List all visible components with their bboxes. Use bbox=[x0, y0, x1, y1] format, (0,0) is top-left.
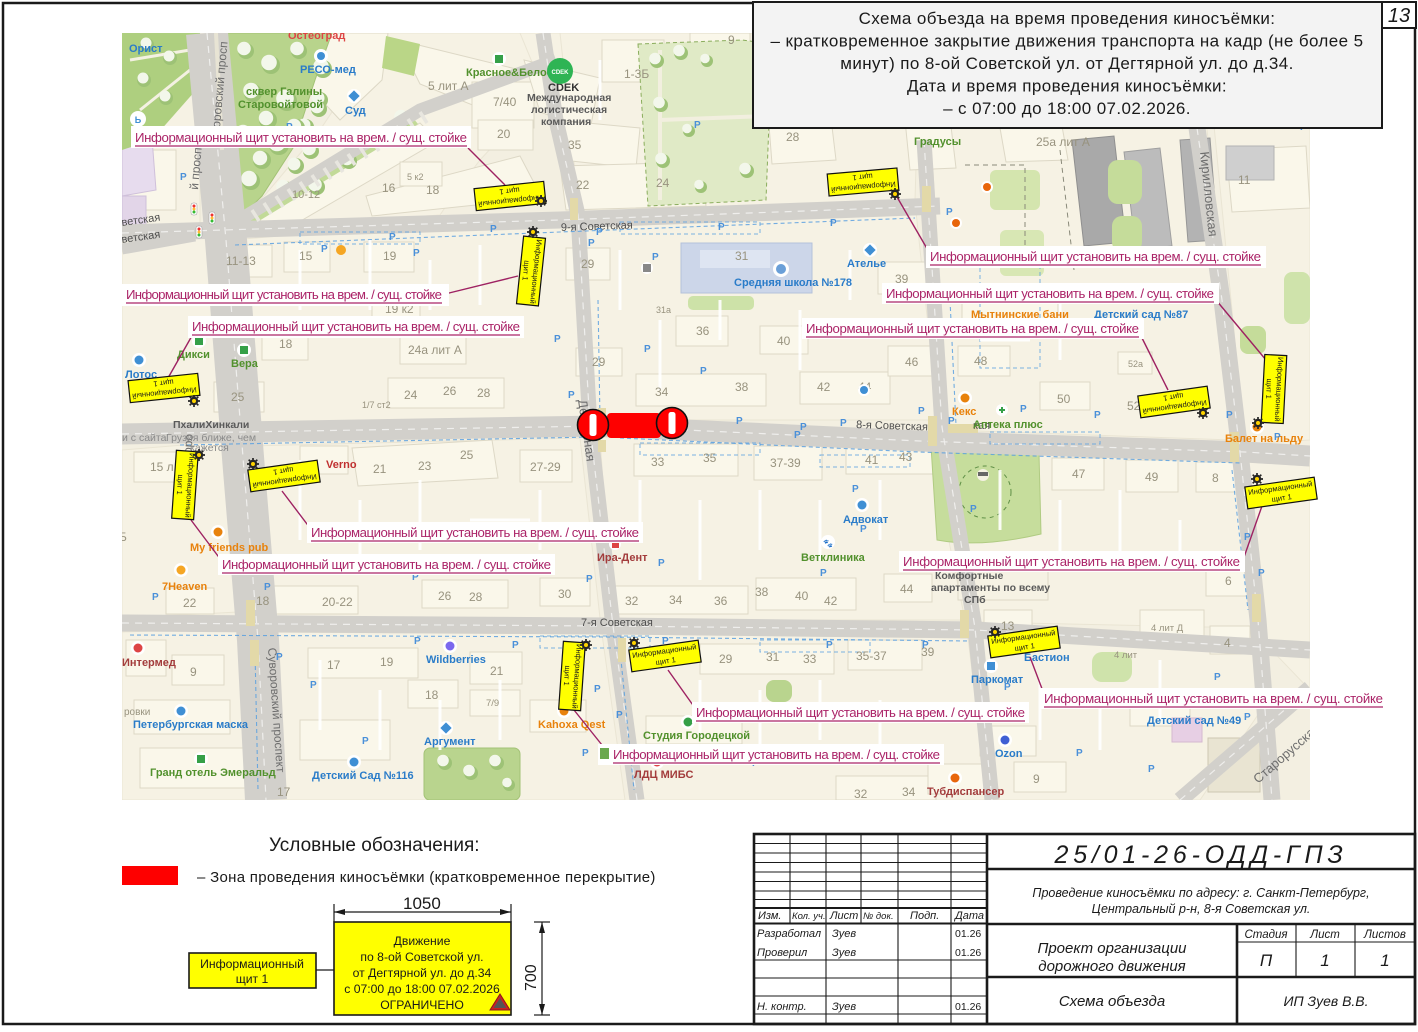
svg-text:– кратковременное закрытие дви: – кратковременное закрытие движения тран… bbox=[771, 32, 1364, 51]
svg-text:33: 33 bbox=[803, 652, 817, 666]
svg-text:P: P bbox=[946, 207, 953, 218]
svg-text:26: 26 bbox=[443, 384, 457, 398]
svg-text:28: 28 bbox=[477, 386, 491, 400]
svg-text:Вера: Вера bbox=[231, 358, 259, 370]
svg-text:Движение: Движение bbox=[394, 934, 451, 948]
svg-text:щит 1: щит 1 bbox=[175, 474, 185, 495]
svg-text:P: P bbox=[840, 418, 847, 429]
svg-text:P: P bbox=[1020, 404, 1027, 415]
svg-text:34: 34 bbox=[669, 593, 683, 607]
svg-text:Информационный щит установить: Информационный щит установить на врем. /… bbox=[886, 286, 1214, 301]
svg-text:700: 700 bbox=[523, 964, 540, 991]
svg-text:27-29: 27-29 bbox=[530, 460, 561, 474]
svg-text:Старовойтовой: Старовойтовой bbox=[238, 99, 323, 111]
svg-text:P: P bbox=[554, 334, 561, 345]
svg-text:9: 9 bbox=[190, 665, 197, 679]
svg-text:щит 1: щит 1 bbox=[236, 972, 269, 986]
svg-text:апартаменты по всему: апартаменты по всему bbox=[931, 582, 1050, 594]
svg-text:13: 13 bbox=[1001, 619, 1015, 633]
svg-text:1050: 1050 bbox=[403, 894, 441, 913]
svg-text:P: P bbox=[736, 416, 743, 427]
svg-text:– Зона проведения киносъёмки (: – Зона проведения киносъёмки (кратковрем… bbox=[197, 869, 656, 886]
svg-text:Kahoxa Qest: Kahoxa Qest bbox=[538, 719, 606, 731]
svg-text:– с 07:00 до 18:00 07.02.2026.: – с 07:00 до 18:00 07.02.2026. bbox=[943, 99, 1191, 118]
svg-text:Verno: Verno bbox=[326, 459, 357, 471]
svg-text:1/7 ст2: 1/7 ст2 bbox=[362, 400, 391, 410]
svg-text:Информационный щит установить: Информационный щит установить на врем. /… bbox=[613, 747, 940, 762]
svg-text:P: P bbox=[582, 748, 589, 759]
svg-text:СПб: СПб bbox=[964, 594, 986, 606]
svg-text:Центральный р-н, 8-я Советская: Центральный р-н, 8-я Советская ул. bbox=[1092, 902, 1311, 916]
svg-text:Зуев: Зуев bbox=[832, 947, 856, 959]
svg-text:29: 29 bbox=[592, 355, 606, 369]
svg-text:Информационный щит установить: Информационный щит установить на врем. /… bbox=[1044, 691, 1383, 706]
svg-text:Тубдиспансер: Тубдиспансер bbox=[927, 786, 1004, 798]
svg-text:34: 34 bbox=[655, 385, 669, 399]
svg-text:логистическая: логистическая bbox=[531, 104, 607, 116]
svg-text:дорожного движения: дорожного движения bbox=[1038, 958, 1185, 975]
svg-text:13: 13 bbox=[1388, 5, 1410, 27]
svg-text:P: P bbox=[658, 558, 665, 569]
svg-text:Детский Сад №116: Детский Сад №116 bbox=[312, 770, 414, 782]
svg-text:щит 1: щит 1 bbox=[852, 172, 873, 183]
svg-text:Петербургская маска: Петербургская маска bbox=[133, 719, 249, 731]
svg-text:P: P bbox=[586, 574, 593, 585]
svg-text:Зуев: Зуев bbox=[832, 928, 856, 940]
svg-text:35: 35 bbox=[703, 451, 717, 465]
svg-text:P: P bbox=[362, 736, 369, 747]
svg-text:28: 28 bbox=[469, 590, 483, 604]
svg-text:Градусы: Градусы bbox=[914, 136, 961, 148]
svg-text:Лист: Лист bbox=[1309, 929, 1340, 941]
svg-text:с 07:00 до 18:00 07.02.2026: с 07:00 до 18:00 07.02.2026 bbox=[344, 982, 500, 996]
svg-text:P: P bbox=[830, 218, 837, 229]
svg-text:P: P bbox=[718, 222, 725, 233]
svg-text:Информационный: Информационный bbox=[200, 957, 304, 971]
svg-text:22: 22 bbox=[183, 596, 197, 610]
svg-text:P: P bbox=[596, 227, 603, 238]
svg-text:29: 29 bbox=[581, 257, 595, 271]
svg-text:52а: 52а bbox=[1128, 359, 1143, 369]
svg-text:18: 18 bbox=[425, 688, 439, 702]
svg-text:P: P bbox=[616, 710, 623, 721]
svg-text:20-22: 20-22 bbox=[322, 595, 353, 609]
svg-text:34: 34 bbox=[902, 785, 916, 799]
svg-text:18: 18 bbox=[256, 594, 270, 608]
svg-text:41: 41 bbox=[865, 453, 879, 467]
svg-text:Ира-Дент: Ира-Дент bbox=[597, 552, 648, 564]
svg-text:25: 25 bbox=[231, 390, 245, 404]
svg-text:01.26: 01.26 bbox=[955, 928, 981, 940]
svg-text:9: 9 bbox=[1033, 772, 1040, 786]
svg-text:24: 24 bbox=[656, 176, 670, 190]
svg-text:ОГРАНИЧЕНО: ОГРАНИЧЕНО bbox=[380, 998, 464, 1012]
svg-text:My friends pub: My friends pub bbox=[190, 542, 269, 554]
svg-text:P: P bbox=[644, 344, 651, 355]
svg-text:4 лит Д: 4 лит Д bbox=[1151, 623, 1184, 634]
svg-text:Изм.: Изм. bbox=[758, 910, 781, 922]
svg-text:37-39: 37-39 bbox=[770, 456, 801, 470]
svg-text:19: 19 bbox=[383, 249, 397, 263]
svg-text:11-13: 11-13 bbox=[226, 254, 256, 268]
svg-text:48: 48 bbox=[974, 354, 988, 368]
svg-text:Схема объезда: Схема объезда bbox=[1059, 993, 1165, 1010]
svg-text:P: P bbox=[1094, 410, 1101, 421]
svg-text:Условные обозначения:: Условные обозначения: bbox=[269, 835, 480, 856]
svg-text:Н. контр.: Н. контр. bbox=[757, 1001, 807, 1013]
svg-text:Информационный щит установить: Информационный щит установить на врем. /… bbox=[311, 525, 639, 540]
svg-text:Проведение киносъёмки по адрес: Проведение киносъёмки по адресу: г. Санк… bbox=[1032, 886, 1369, 900]
svg-text:P: P bbox=[276, 652, 283, 663]
svg-text:Орист: Орист bbox=[129, 43, 163, 55]
svg-text:32: 32 bbox=[625, 594, 639, 608]
svg-text:P: P bbox=[321, 244, 328, 255]
svg-text:43: 43 bbox=[899, 450, 913, 464]
svg-text:P: P bbox=[594, 684, 601, 695]
svg-text:7Heaven: 7Heaven bbox=[162, 581, 208, 593]
svg-text:P: P bbox=[1148, 764, 1155, 775]
svg-text:🐾: 🐾 bbox=[823, 539, 833, 548]
svg-text:P: P bbox=[512, 640, 519, 651]
svg-text:Информационный щит установить: Информационный щит установить на врем. /… bbox=[930, 249, 1261, 264]
svg-text:20: 20 bbox=[497, 127, 511, 141]
svg-text:P: P bbox=[1226, 410, 1233, 421]
svg-text:Балет на льду: Балет на льду bbox=[1225, 433, 1304, 445]
svg-text:31а: 31а bbox=[656, 305, 671, 315]
svg-text:19: 19 bbox=[380, 655, 394, 669]
svg-text:6: 6 bbox=[1225, 574, 1232, 588]
svg-text:44: 44 bbox=[900, 582, 914, 596]
svg-text:P: P bbox=[588, 238, 595, 249]
svg-text:Международная: Международная bbox=[527, 92, 611, 104]
svg-text:P: P bbox=[970, 504, 977, 515]
svg-text:P: P bbox=[800, 422, 807, 433]
svg-text:17: 17 bbox=[277, 785, 291, 799]
svg-text:5 лит А: 5 лит А bbox=[428, 79, 469, 93]
svg-text:22: 22 bbox=[576, 178, 590, 192]
svg-text:28: 28 bbox=[786, 130, 800, 144]
svg-text:П: П bbox=[1260, 951, 1273, 970]
svg-text:Дикси: Дикси bbox=[177, 349, 210, 361]
svg-text:40: 40 bbox=[777, 334, 791, 348]
svg-text:Аптека плюс: Аптека плюс bbox=[973, 419, 1043, 431]
svg-text:33: 33 bbox=[651, 455, 665, 469]
svg-text:38: 38 bbox=[755, 585, 769, 599]
svg-text:15: 15 bbox=[299, 249, 313, 263]
svg-text:Средняя школа №178: Средняя школа №178 bbox=[734, 277, 852, 289]
svg-text:минут) по 8-ой Советской ул. о: минут) по 8-ой Советской ул. от Дегтярно… bbox=[840, 54, 1294, 73]
svg-text:Кекс: Кекс bbox=[952, 406, 976, 418]
svg-text:8: 8 bbox=[1212, 471, 1219, 485]
svg-text:№ док.: № док. bbox=[863, 911, 894, 922]
svg-text:Суд: Суд bbox=[345, 105, 366, 117]
svg-text:Зуев: Зуев bbox=[832, 1001, 856, 1013]
svg-text:P: P bbox=[1244, 712, 1251, 723]
svg-text:ЛДЦ МИБС: ЛДЦ МИБС bbox=[634, 769, 693, 781]
svg-text:щит 1: щит 1 bbox=[1264, 378, 1274, 399]
svg-text:Листов: Листов bbox=[1363, 929, 1406, 941]
svg-text:31: 31 bbox=[735, 249, 749, 263]
svg-text:Аргумент: Аргумент bbox=[424, 736, 476, 748]
svg-text:Ветклиника: Ветклиника bbox=[801, 552, 866, 564]
svg-text:16: 16 bbox=[382, 181, 396, 195]
svg-text:17: 17 bbox=[327, 658, 341, 672]
svg-text:Проект организации: Проект организации bbox=[1037, 940, 1187, 957]
svg-text:P: P bbox=[794, 430, 801, 441]
svg-text:Лист: Лист bbox=[829, 910, 858, 922]
svg-text:42: 42 bbox=[824, 594, 838, 608]
svg-text:ПхалиХинкали: ПхалиХинкали bbox=[173, 419, 249, 431]
svg-text:23: 23 bbox=[418, 459, 432, 473]
svg-text:P: P bbox=[1214, 672, 1221, 683]
svg-text:Разработал: Разработал bbox=[757, 928, 821, 940]
svg-text:щит 1: щит 1 bbox=[562, 665, 572, 686]
svg-text:1: 1 bbox=[1380, 951, 1389, 970]
svg-text:P: P bbox=[389, 232, 396, 243]
svg-text:32: 32 bbox=[854, 787, 868, 801]
svg-text:Информационный щит установить: Информационный щит установить на врем. /… bbox=[126, 287, 442, 302]
svg-text:Информационный щит установить: Информационный щит установить на врем. /… bbox=[192, 319, 520, 334]
svg-text:4: 4 bbox=[1224, 636, 1231, 650]
svg-text:50: 50 bbox=[1057, 392, 1071, 406]
svg-text:Студия Городецкой: Студия Городецкой bbox=[643, 730, 750, 742]
svg-text:P: P bbox=[918, 406, 925, 417]
svg-text:P: P bbox=[1004, 682, 1011, 693]
svg-text:от Дегтярной ул. до д.34: от Дегтярной ул. до д.34 bbox=[353, 966, 492, 980]
svg-text:8-я Советская: 8-я Советская bbox=[856, 419, 928, 434]
svg-text:4 лит: 4 лит bbox=[1114, 650, 1138, 661]
svg-text:Информационный щит установить: Информационный щит установить на врем. /… bbox=[806, 321, 1139, 336]
svg-text:P: P bbox=[568, 390, 575, 401]
svg-text:P: P bbox=[694, 120, 701, 131]
svg-text:Паркомат: Паркомат bbox=[971, 674, 1024, 686]
svg-text:P: P bbox=[922, 640, 929, 651]
svg-text:Гранд отель Эмеральд: Гранд отель Эмеральд bbox=[150, 767, 276, 779]
svg-text:21: 21 bbox=[490, 664, 504, 678]
svg-text:9: 9 bbox=[728, 33, 735, 47]
svg-text:15 л: 15 л bbox=[150, 460, 174, 474]
svg-text:Детский сад №49: Детский сад №49 bbox=[1147, 715, 1241, 727]
svg-text:11: 11 bbox=[1238, 173, 1251, 187]
svg-text:24а лит А: 24а лит А bbox=[408, 343, 462, 357]
svg-text:26: 26 bbox=[438, 589, 452, 603]
svg-text:18: 18 bbox=[426, 183, 440, 197]
svg-text:5 к2: 5 к2 bbox=[407, 172, 423, 182]
svg-text:Интермед: Интермед bbox=[122, 657, 176, 669]
svg-text:P: P bbox=[310, 680, 317, 691]
svg-text:P: P bbox=[852, 484, 859, 495]
svg-text:P: P bbox=[414, 636, 421, 647]
svg-text:P: P bbox=[152, 592, 159, 603]
svg-text:47: 47 bbox=[1072, 467, 1086, 481]
svg-text:P: P bbox=[948, 416, 955, 427]
svg-text:40: 40 bbox=[795, 589, 809, 603]
svg-text:35: 35 bbox=[568, 138, 582, 152]
svg-text:Информационный щит установить: Информационный щит установить на врем. /… bbox=[903, 554, 1240, 569]
svg-text:1-3Б: 1-3Б bbox=[624, 67, 649, 81]
svg-text:ИП Зуев В.В.: ИП Зуев В.В. bbox=[1283, 993, 1368, 1009]
svg-text:01.26: 01.26 bbox=[955, 1001, 981, 1013]
svg-text:по 8-ой Советской ул.: по 8-ой Советской ул. bbox=[360, 950, 483, 964]
svg-text:Схема объезда на время проведе: Схема объезда на время проведения киносъ… bbox=[859, 9, 1276, 28]
svg-text:и с сайта: и с сайта bbox=[122, 432, 167, 444]
svg-text:Wildberries: Wildberries bbox=[426, 654, 486, 666]
svg-text:21: 21 bbox=[373, 462, 387, 476]
svg-text:Ь: Ь bbox=[135, 115, 142, 125]
svg-text:24: 24 bbox=[404, 388, 418, 402]
svg-text:Ozon: Ozon bbox=[995, 748, 1023, 760]
svg-text:Дата и время проведения киносъ: Дата и время проведения киносъёмки: bbox=[907, 77, 1227, 96]
svg-text:7/9: 7/9 bbox=[486, 698, 499, 709]
svg-text:P: P bbox=[1274, 432, 1281, 443]
svg-text:18: 18 bbox=[279, 337, 293, 351]
svg-text:Проверил: Проверил bbox=[757, 947, 807, 959]
svg-text:36: 36 bbox=[714, 594, 728, 608]
svg-text:42: 42 bbox=[817, 380, 831, 394]
svg-text:ровки: ровки bbox=[124, 707, 150, 718]
svg-text:P: P bbox=[264, 582, 271, 593]
svg-text:10-12: 10-12 bbox=[292, 189, 320, 201]
svg-text:Кол. уч.: Кол. уч. bbox=[792, 911, 826, 922]
svg-text:P: P bbox=[180, 172, 187, 183]
svg-text:РЕСО-мед: РЕСО-мед bbox=[300, 64, 356, 76]
svg-text:P: P bbox=[826, 640, 833, 651]
svg-text:Дата: Дата bbox=[953, 910, 984, 922]
svg-text:Красное&Белое: Красное&Белое bbox=[466, 67, 553, 79]
svg-text:35-37: 35-37 bbox=[856, 649, 887, 663]
svg-text:CDEK: CDEK bbox=[551, 70, 569, 76]
svg-text:1: 1 bbox=[1320, 951, 1329, 970]
svg-text:31: 31 bbox=[766, 650, 780, 664]
svg-text:46: 46 bbox=[905, 355, 919, 369]
svg-text:Ателье: Ателье bbox=[847, 258, 886, 270]
svg-text:25: 25 bbox=[460, 448, 474, 462]
svg-text:P: P bbox=[700, 366, 707, 377]
svg-text:36: 36 bbox=[696, 324, 710, 338]
svg-text:7-я Советская: 7-я Советская bbox=[581, 617, 653, 629]
svg-text:38: 38 bbox=[735, 380, 749, 394]
svg-text:01.26: 01.26 bbox=[955, 947, 981, 959]
svg-text:49: 49 bbox=[1145, 470, 1159, 484]
svg-text:25/01-26-ОДД-ГПЗ: 25/01-26-ОДД-ГПЗ bbox=[1054, 841, 1348, 869]
svg-text:P: P bbox=[1076, 748, 1083, 759]
svg-text:Информационный щит установить: Информационный щит установить на врем. /… bbox=[222, 557, 551, 572]
svg-text:29: 29 bbox=[719, 652, 733, 666]
svg-text:P: P bbox=[490, 224, 497, 235]
svg-text:сквер Галины: сквер Галины bbox=[246, 86, 322, 98]
svg-text:Информационный щит установить: Информационный щит установить на врем. /… bbox=[135, 130, 467, 145]
svg-text:Информационный щит установить: Информационный щит установить на врем. /… bbox=[696, 705, 1025, 720]
svg-text:Подп.: Подп. bbox=[910, 910, 939, 922]
svg-text:30: 30 bbox=[558, 587, 572, 601]
svg-text:Стадия: Стадия bbox=[1244, 929, 1287, 941]
svg-text:7/40: 7/40 bbox=[493, 95, 517, 109]
svg-text:25а лит А: 25а лит А bbox=[1036, 135, 1090, 149]
svg-text:P: P bbox=[413, 248, 420, 259]
svg-text:P: P bbox=[652, 252, 659, 263]
svg-text:P: P bbox=[860, 524, 867, 535]
svg-text:P: P bbox=[1258, 568, 1265, 579]
svg-text:P: P bbox=[820, 568, 827, 579]
svg-text:компания: компания bbox=[541, 116, 591, 128]
